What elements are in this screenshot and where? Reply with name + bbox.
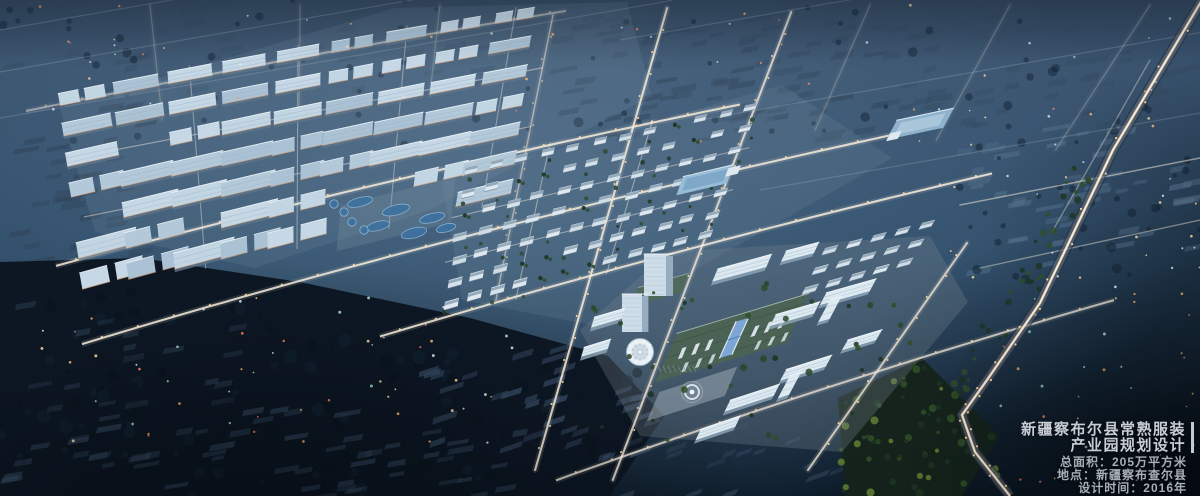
- stat-design-date: 设计时间：2016年: [1021, 482, 1187, 495]
- project-title-line2: 产业园规划设计: [1021, 438, 1186, 454]
- masterplan-render: 新疆察布尔县常熟服装 产业园规划设计 总面积：205万平方米 地点：新疆察布查尔…: [0, 0, 1200, 496]
- project-title-block: 新疆察布尔县常熟服装 产业园规划设计: [1021, 422, 1194, 453]
- project-caption: 新疆察布尔县常熟服装 产业园规划设计 总面积：205万平方米 地点：新疆察布查尔…: [1021, 422, 1194, 495]
- project-title-line1: 新疆察布尔县常熟服装: [1021, 422, 1186, 438]
- project-stats-block: 总面积：205万平方米 地点：新疆察布查尔县 设计时间：2016年: [1021, 456, 1194, 495]
